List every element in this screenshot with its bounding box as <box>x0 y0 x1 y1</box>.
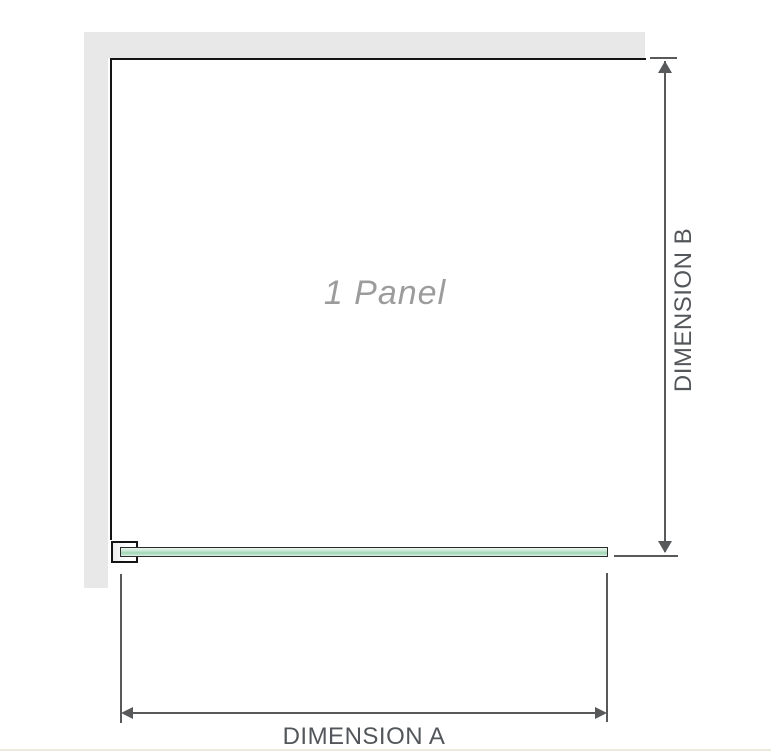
dimension-b-tick-top <box>650 57 677 59</box>
arrow-right-icon <box>595 707 607 719</box>
panel-outline-left <box>110 58 112 540</box>
dimension-a-extension-left <box>120 574 122 723</box>
panel-dimension-diagram: 1 Panel DIMENSION B DIMENSION A <box>0 0 771 755</box>
glass-panel-bar <box>120 547 608 557</box>
arrow-down-icon <box>658 541 672 553</box>
arrow-left-icon <box>121 707 133 719</box>
panel-label: 1 Panel <box>185 274 585 313</box>
panel-outline-top <box>110 58 646 60</box>
page-bottom-rule <box>0 749 771 751</box>
dimension-b-label: DIMENSION B <box>670 200 696 420</box>
dimension-b-tick-bottom <box>614 555 678 557</box>
dimension-a-label: DIMENSION A <box>164 723 564 751</box>
dimension-a-extension-right <box>606 573 608 722</box>
arrow-up-icon <box>658 61 672 73</box>
dimension-a-line <box>123 712 605 714</box>
wall-side-strip <box>84 32 108 588</box>
dimension-b-line <box>664 61 666 552</box>
wall-top-strip <box>84 32 645 58</box>
